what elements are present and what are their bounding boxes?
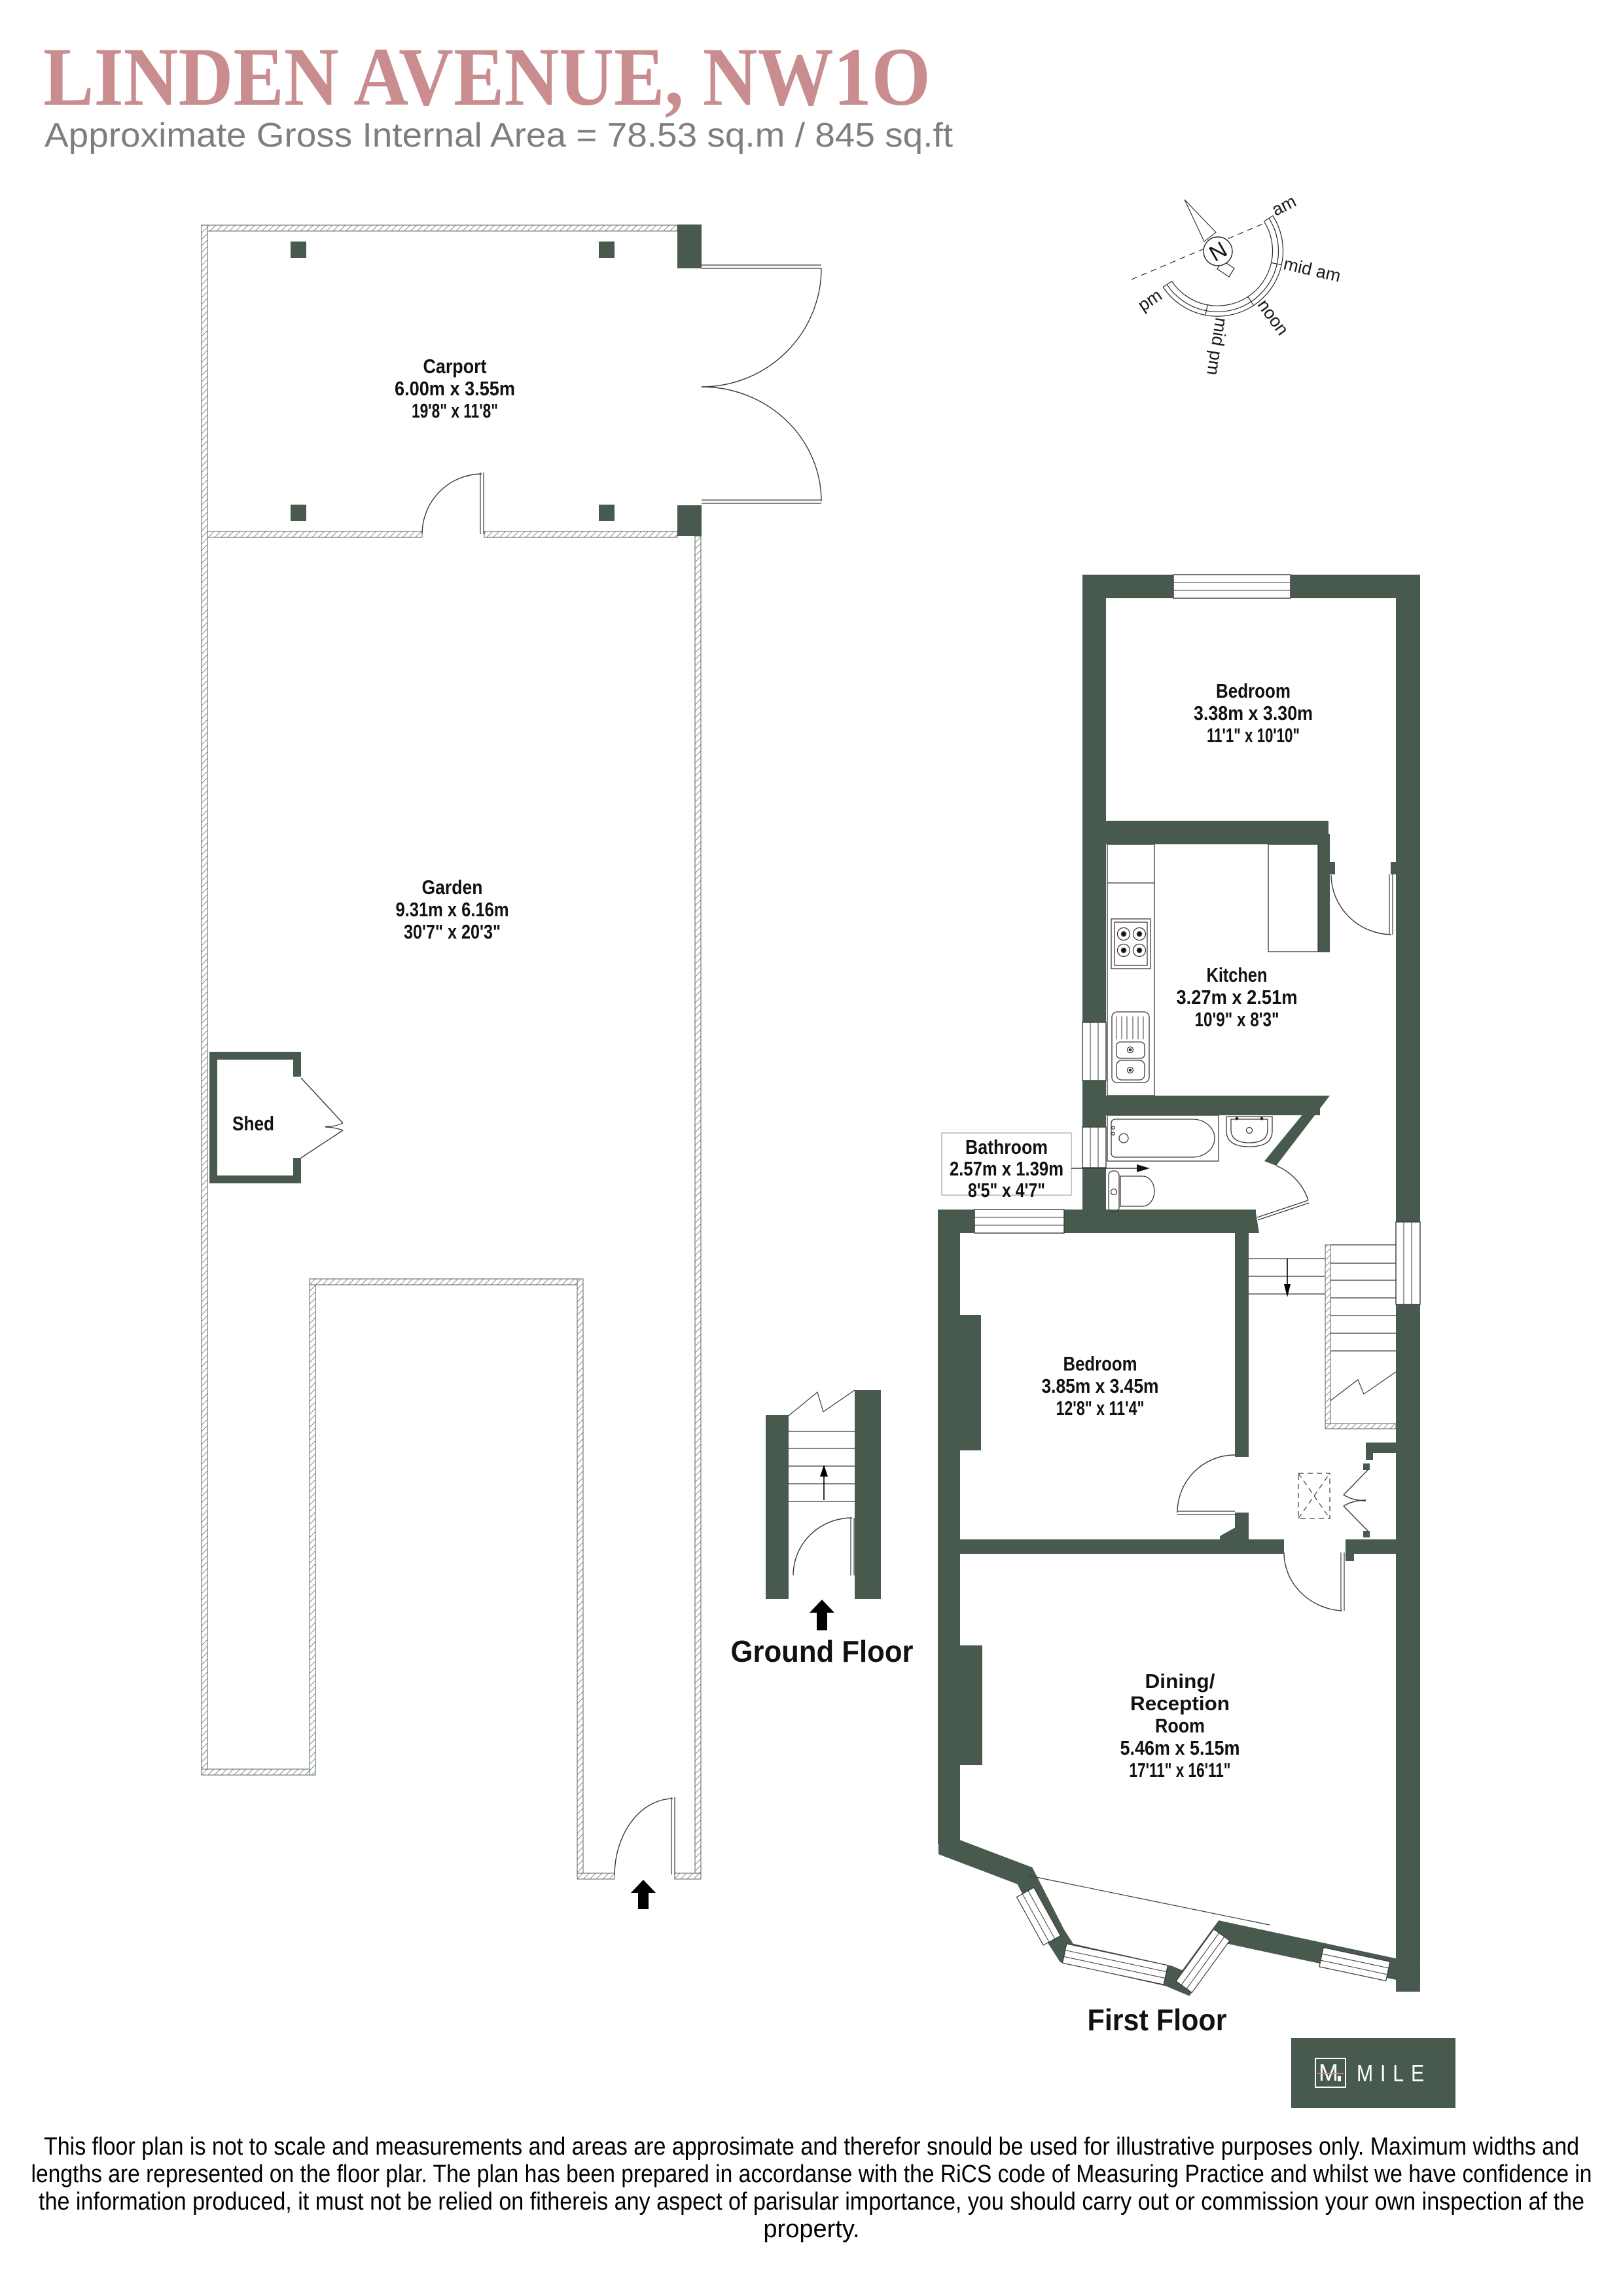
svg-text:3.85m x 3.45m: 3.85m x 3.45m [1042,1374,1159,1397]
svg-text:M: M [1319,2059,1338,2086]
svg-text:Bathroom: Bathroom [965,1136,1048,1158]
svg-text:8'5" x 4'7": 8'5" x 4'7" [968,1179,1045,1202]
svg-text:lengths are represented on the: lengths are represented on the floor pla… [31,2161,1592,2188]
svg-text:10'9" x 8'3": 10'9" x 8'3" [1195,1008,1279,1031]
svg-text:Shed: Shed [232,1112,274,1135]
svg-text:11'1" x 10'10": 11'1" x 10'10" [1207,724,1300,747]
svg-text:noon: noon [1253,296,1293,339]
svg-text:LINDEN AVENUE, NW1O: LINDEN AVENUE, NW1O [43,31,931,123]
svg-text:MILE: MILE [1357,2060,1431,2087]
svg-text:Room: Room [1155,1714,1205,1737]
svg-text:9.31m x 6.16m: 9.31m x 6.16m [396,898,509,921]
svg-text:6.00m x 3.55m: 6.00m x 3.55m [395,377,515,400]
svg-text:Ground Floor: Ground Floor [731,1634,914,1668]
svg-text:Kitchen: Kitchen [1207,963,1268,986]
svg-text:12'8" x 11'4": 12'8" x 11'4" [1056,1397,1145,1420]
svg-text:Bedroom: Bedroom [1216,679,1291,702]
svg-text:Garden: Garden [422,876,483,899]
svg-text:Dining/: Dining/ [1145,1670,1215,1693]
svg-text:mid am: mid am [1282,254,1343,286]
svg-text:pm: pm [1134,285,1166,315]
svg-text:This floor plan is not to scal: This floor plan is not to scale and meas… [44,2133,1579,2161]
svg-text:Approximate Gross Internal Are: Approximate Gross Internal Area = 78.53 … [45,117,954,154]
svg-text:property.: property. [763,2215,859,2243]
svg-text:Bedroom: Bedroom [1063,1352,1137,1375]
svg-text:5.46m x 5.15m: 5.46m x 5.15m [1120,1736,1240,1759]
svg-text:3.38m x 3.30m: 3.38m x 3.30m [1194,702,1313,725]
svg-text:Carport: Carport [423,355,487,378]
svg-text:17'11" x 16'11": 17'11" x 16'11" [1130,1759,1231,1782]
svg-text:mid pm: mid pm [1203,316,1231,376]
svg-text:the information produced, it m: the information produced, it must not be… [39,2188,1584,2215]
svg-text:3.27m x 2.51m: 3.27m x 2.51m [1177,986,1298,1009]
svg-text:19'8" x 11'8": 19'8" x 11'8" [412,399,498,422]
svg-text:30'7" x 20'3": 30'7" x 20'3" [404,920,501,943]
svg-text:First Floor: First Floor [1088,2003,1227,2037]
svg-text:Reception: Reception [1130,1692,1230,1715]
svg-text:2.57m x 1.39m: 2.57m x 1.39m [950,1157,1063,1180]
